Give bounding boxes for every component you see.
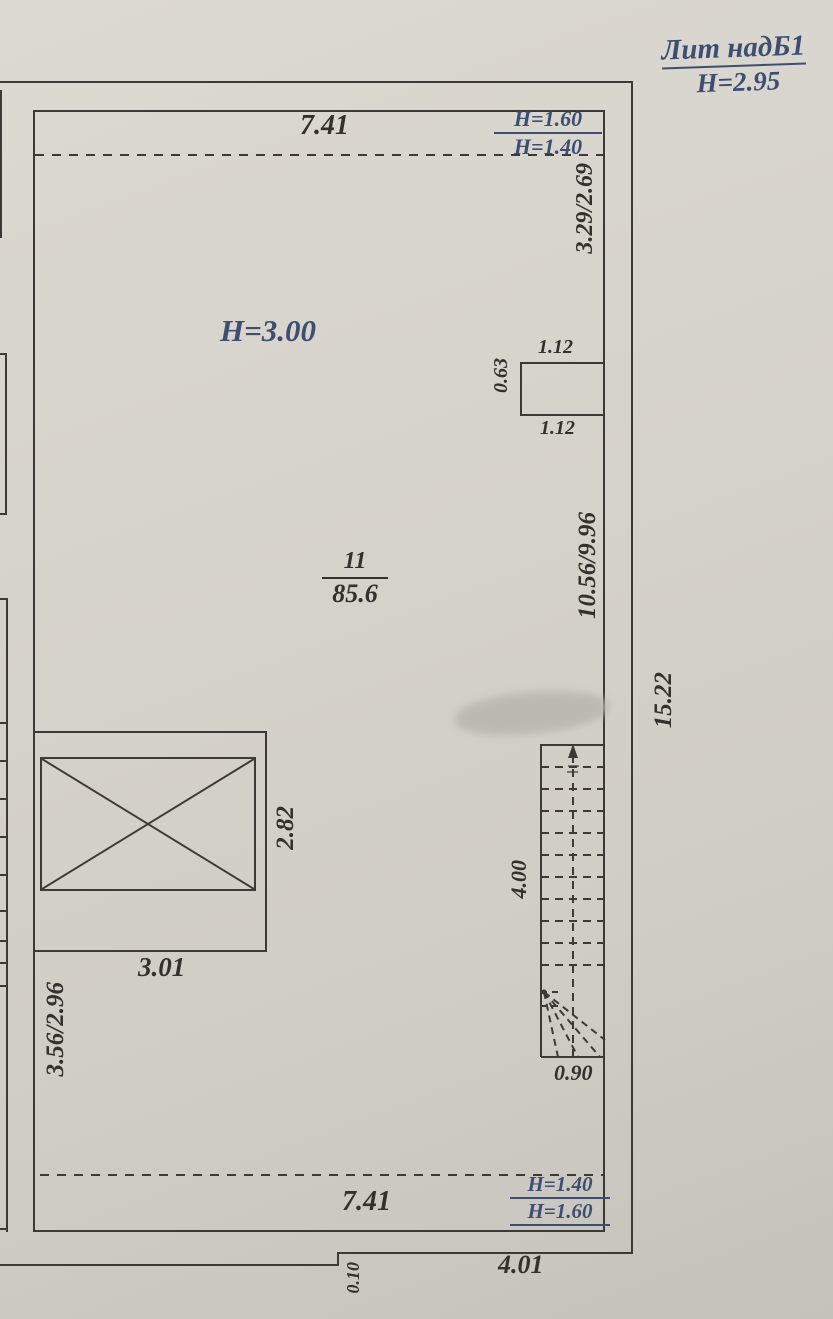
dim-bay-width: 3.01 [138,952,185,983]
dim-bottom-step: 0.10 [343,1262,364,1294]
bottom-height-pair: H=1.40 H=1.60 [510,1172,610,1226]
room-area: 85.6 [322,579,388,609]
left-edge-stair-tick [0,910,8,912]
bay-right-edge [265,731,267,952]
left-edge-stair-tick [0,985,8,987]
inner-wall-left [33,110,35,1232]
bottom-height-upper: H=1.40 [510,1172,610,1199]
room-number: 11 [322,548,388,579]
erasure-smudge [454,688,611,738]
top-height-lower: H=1.40 [494,134,602,159]
crossed-rectangle-diagonals [42,759,254,889]
title-liter: Лит надБ1 [661,30,806,70]
left-partial-rect-a-bottom [0,513,7,515]
bottom-height-lower: H=1.60 [510,1199,610,1226]
dim-stair-run: 4.00 [506,860,532,899]
dim-right-upper: 3.29/2.69 [572,163,599,254]
dim-left-lower: 3.56/2.96 [42,982,70,1076]
dim-ledge-top: 1.12 [538,336,573,359]
inner-wall-bottom [33,1230,605,1232]
left-edge-stair-tick [0,836,8,838]
left-edge-stair-tick [0,874,8,876]
dim-top-width: 7.41 [300,110,349,142]
bay-top-edge [35,731,267,733]
left-edge-line-upper [0,90,2,238]
stairs-up-arrow-icon [568,744,578,758]
dim-right-middle: 10.56/9.96 [574,512,602,619]
left-edge-stair-tick [0,760,8,762]
room-label: 11 85.6 [322,548,388,608]
left-partial-rect-b-bottom [0,1228,8,1230]
left-edge-stair-tick [0,940,8,942]
crossed-rectangle [40,757,256,891]
left-edge-stair-tick [0,798,8,800]
outer-wall-bottom-right [337,1252,633,1254]
left-edge-stair-tick [0,722,8,724]
dim-bottom-right-width: 4.01 [498,1250,544,1280]
outer-wall-top [0,81,633,83]
outer-wall-bottom-step [337,1252,339,1266]
staircase [538,742,608,1064]
winder-treads [544,992,605,1057]
ledge-left-edge [520,362,522,416]
dim-stair-width: 0.90 [554,1060,593,1086]
dim-ledge-bottom: 1.12 [540,417,575,440]
ledge-top-edge [520,362,605,364]
top-height-pair: H=1.60 H=1.40 [494,106,602,160]
left-edge-stair-tick [0,962,8,964]
floor-plan-scan: Лит надБ1 H=2.95 7.41 H=1.60 H=1.40 3.29… [0,0,833,1319]
title-height: H=2.95 [696,65,781,99]
dim-ledge-depth: 0.63 [490,358,513,393]
left-partial-rect-a-side [5,353,7,515]
top-height-upper: H=1.60 [494,106,602,134]
ledge-bottom-edge [520,414,605,416]
dim-overall-right: 15.22 [650,672,678,728]
title-block: Лит надБ1 H=2.95 [661,30,807,102]
dim-bay-depth: 2.82 [272,806,300,850]
outer-wall-right [631,81,633,1254]
dim-bottom-width: 7.41 [342,1186,391,1218]
outer-wall-bottom-left [0,1264,339,1266]
left-partial-rect-b-side [6,598,8,1232]
room-height-label: H=3.00 [220,313,316,349]
